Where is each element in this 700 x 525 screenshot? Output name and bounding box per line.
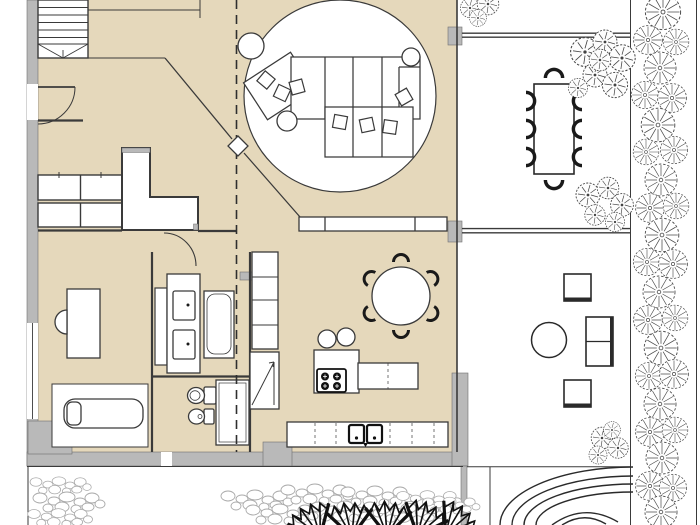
counter-sink-2	[367, 425, 382, 443]
bar-stool-2	[337, 328, 355, 346]
bath-halfwall	[155, 288, 167, 365]
garden-door-opening	[161, 452, 172, 466]
bar-stool-1	[318, 330, 336, 348]
wall-bottom	[27, 452, 463, 466]
cooktop	[317, 369, 346, 392]
staircase	[38, 0, 88, 58]
lounge-armchair-2	[564, 380, 591, 407]
column-patio-top	[448, 27, 462, 45]
desk	[67, 289, 100, 358]
kitchen-counter	[287, 422, 448, 447]
hallway-cabinets	[38, 172, 123, 227]
wall-pillar-right	[452, 373, 468, 466]
sideboard	[299, 217, 447, 231]
sink-2	[173, 330, 195, 359]
entry-opening	[27, 84, 38, 120]
patio-table	[534, 84, 574, 174]
shower	[216, 380, 249, 445]
column-patio-mid	[448, 221, 462, 242]
floor-plan-page	[0, 0, 700, 525]
lounge-round-table	[532, 323, 567, 358]
floor-plan-canvas	[0, 0, 700, 525]
toilet	[188, 387, 217, 404]
tall-cabinets	[252, 252, 278, 349]
lounge-armchair-1	[564, 274, 591, 301]
bidet	[189, 409, 215, 424]
sink-1	[173, 291, 195, 320]
daybed-pillow	[67, 402, 81, 425]
counter-sink-1	[349, 425, 364, 443]
bathtub	[204, 291, 234, 358]
